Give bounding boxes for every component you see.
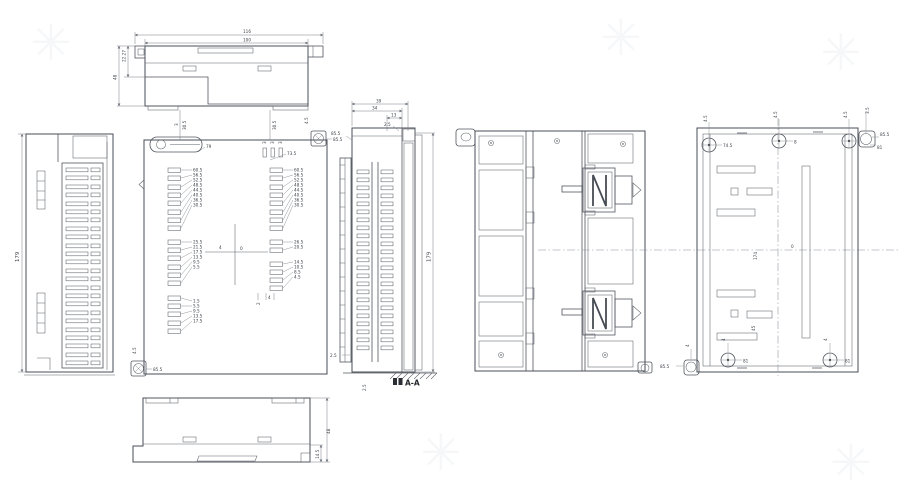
center-datum: 0 4 [205,224,268,285]
section-view: 39 34 13 2.5 85.5 179 2.5 2.5 A-A [330,99,437,392]
dim-label: 4 [268,295,271,300]
din-clip-edge [139,180,144,189]
technical-drawing-page: ✳ ✳ ✳ ✳ ✳ 116 100 22.27 48 179 [0,0,900,500]
vent-slats [66,168,100,365]
dim-label: 179 [15,251,21,262]
dim-label: 8 [794,140,797,145]
terminal-slots-left [168,168,181,333]
hatched-wall [404,143,413,370]
dim-label: 100 [243,38,251,43]
watermark-icon: ✳ [600,9,642,67]
front-view: 79 3 3 3 73.5 3 30.5 30.5 85.5 4.5 60.5 … [131,110,343,376]
mounting-hole-icon [861,134,872,145]
dim-label: 2.5 [384,122,391,127]
tab-hole-icon [461,133,471,141]
dim-label: 3 [278,141,283,144]
watermark-icon: ✳ [420,424,462,482]
dim-label: 30.5 [294,203,304,208]
dim-label: 13 [391,113,397,118]
dim-label: 4.5 [773,111,778,118]
dim-label: 85.5 [660,364,670,369]
dim-label: 17.5 [193,319,203,324]
latch-pin [562,186,582,192]
rib-slots [717,166,810,340]
screw-boss [823,353,837,367]
rear-plate-view: 74.5 8 4.5 4.5 4.5 3.5 85.5 81 174 0 45 … [660,107,890,376]
screw-boss [772,134,786,148]
watermark-icon: ✳ [820,24,862,82]
section-mark-icon [393,378,397,385]
screw-boss [721,353,735,367]
hatched-cap [403,129,415,141]
bottom-slot [197,456,257,461]
dim-label: 81 [743,359,749,364]
screw-boss [702,138,716,152]
dim-label: 174 [753,252,758,260]
dim-label: 79 [206,144,212,149]
dim-label: 4.5 [843,111,848,118]
dim-label: 4.5 [304,117,309,124]
dim-label: 20.5 [294,245,304,250]
dim-label: 14.5 [315,449,320,459]
dim-label: 4.5 [703,115,708,122]
dim-label: 81 [877,145,883,150]
vent-panel [62,163,103,368]
side-view: 179 [15,134,115,375]
dim-label: 74.5 [723,143,733,148]
corner-tab [456,129,475,146]
din-latch [583,165,641,215]
drawing-canvas: ✳ ✳ ✳ ✳ ✳ 116 100 22.27 48 179 [0,0,900,500]
dim-label: 2.5 [330,353,337,358]
section-mark-icon [399,378,403,385]
dim-label: 0 [791,244,794,249]
dim-label: 39 [376,99,382,104]
terminal-comb [340,158,351,362]
dim-label: 4.5 [132,347,137,354]
watermark: ✳ ✳ ✳ ✳ ✳ [30,9,872,492]
watermark-icon: ✳ [30,14,72,72]
dim-label: 85.5 [333,137,343,142]
terminal-slots-right [270,168,283,290]
dim-label: 48 [113,74,118,80]
din-latch [583,288,641,338]
dim-label: 4.5 [294,275,301,280]
dim-label: 81 [845,359,851,364]
ladder-right-labels: 60.5 56.5 52.5 48.5 44.5 40.5 36.5 30.5 … [294,168,304,280]
screw-boss [842,134,856,148]
dim-label: 2 [256,302,261,305]
dim-label: 48 [326,428,331,434]
dim-label: 3 [270,141,275,144]
top-view: 116 100 22.27 48 [113,29,324,110]
dim-label: 3 [262,141,267,144]
section-label: A-A [405,379,420,388]
ladder-left-labels: 60.5 56.5 52.5 48.5 44.5 40.5 36.5 30.5 … [193,168,203,324]
watermark-icon: ✳ [830,434,872,492]
dim-label: 4 [685,344,690,347]
dim-label: 85.5 [153,367,163,372]
dim-label: 3 [174,123,179,126]
mounting-hole-icon [686,362,696,372]
dim-label: 4 [823,338,828,341]
dim-label: 34 [372,106,378,111]
dim-label: 3.5 [865,107,870,114]
dim-label: 30.5 [182,120,187,130]
back-open-view [456,129,652,373]
bottom-view: 48 14.5 [133,398,331,462]
dim-label: 73.5 [287,151,297,156]
dim-label: 85.5 [331,131,341,136]
dim-label: 30.5 [272,120,277,130]
dim-label: 22.27 [122,50,127,62]
dim-label: 85.5 [880,132,890,137]
dim-label: 45 [751,325,756,331]
dim-label: 30.5 [193,203,203,208]
dim-label: 4 [721,338,726,341]
dim-label: 4 [219,245,222,250]
dim-label: 0 [240,246,243,251]
dim-label: 179 [427,251,433,262]
dim-label: 5.5 [193,265,200,270]
latch-pin [562,309,582,315]
dim-label: 116 [243,29,251,34]
top-slot [198,48,253,53]
dim-label: 2.5 [362,384,367,391]
section-vent-slats [357,170,393,350]
